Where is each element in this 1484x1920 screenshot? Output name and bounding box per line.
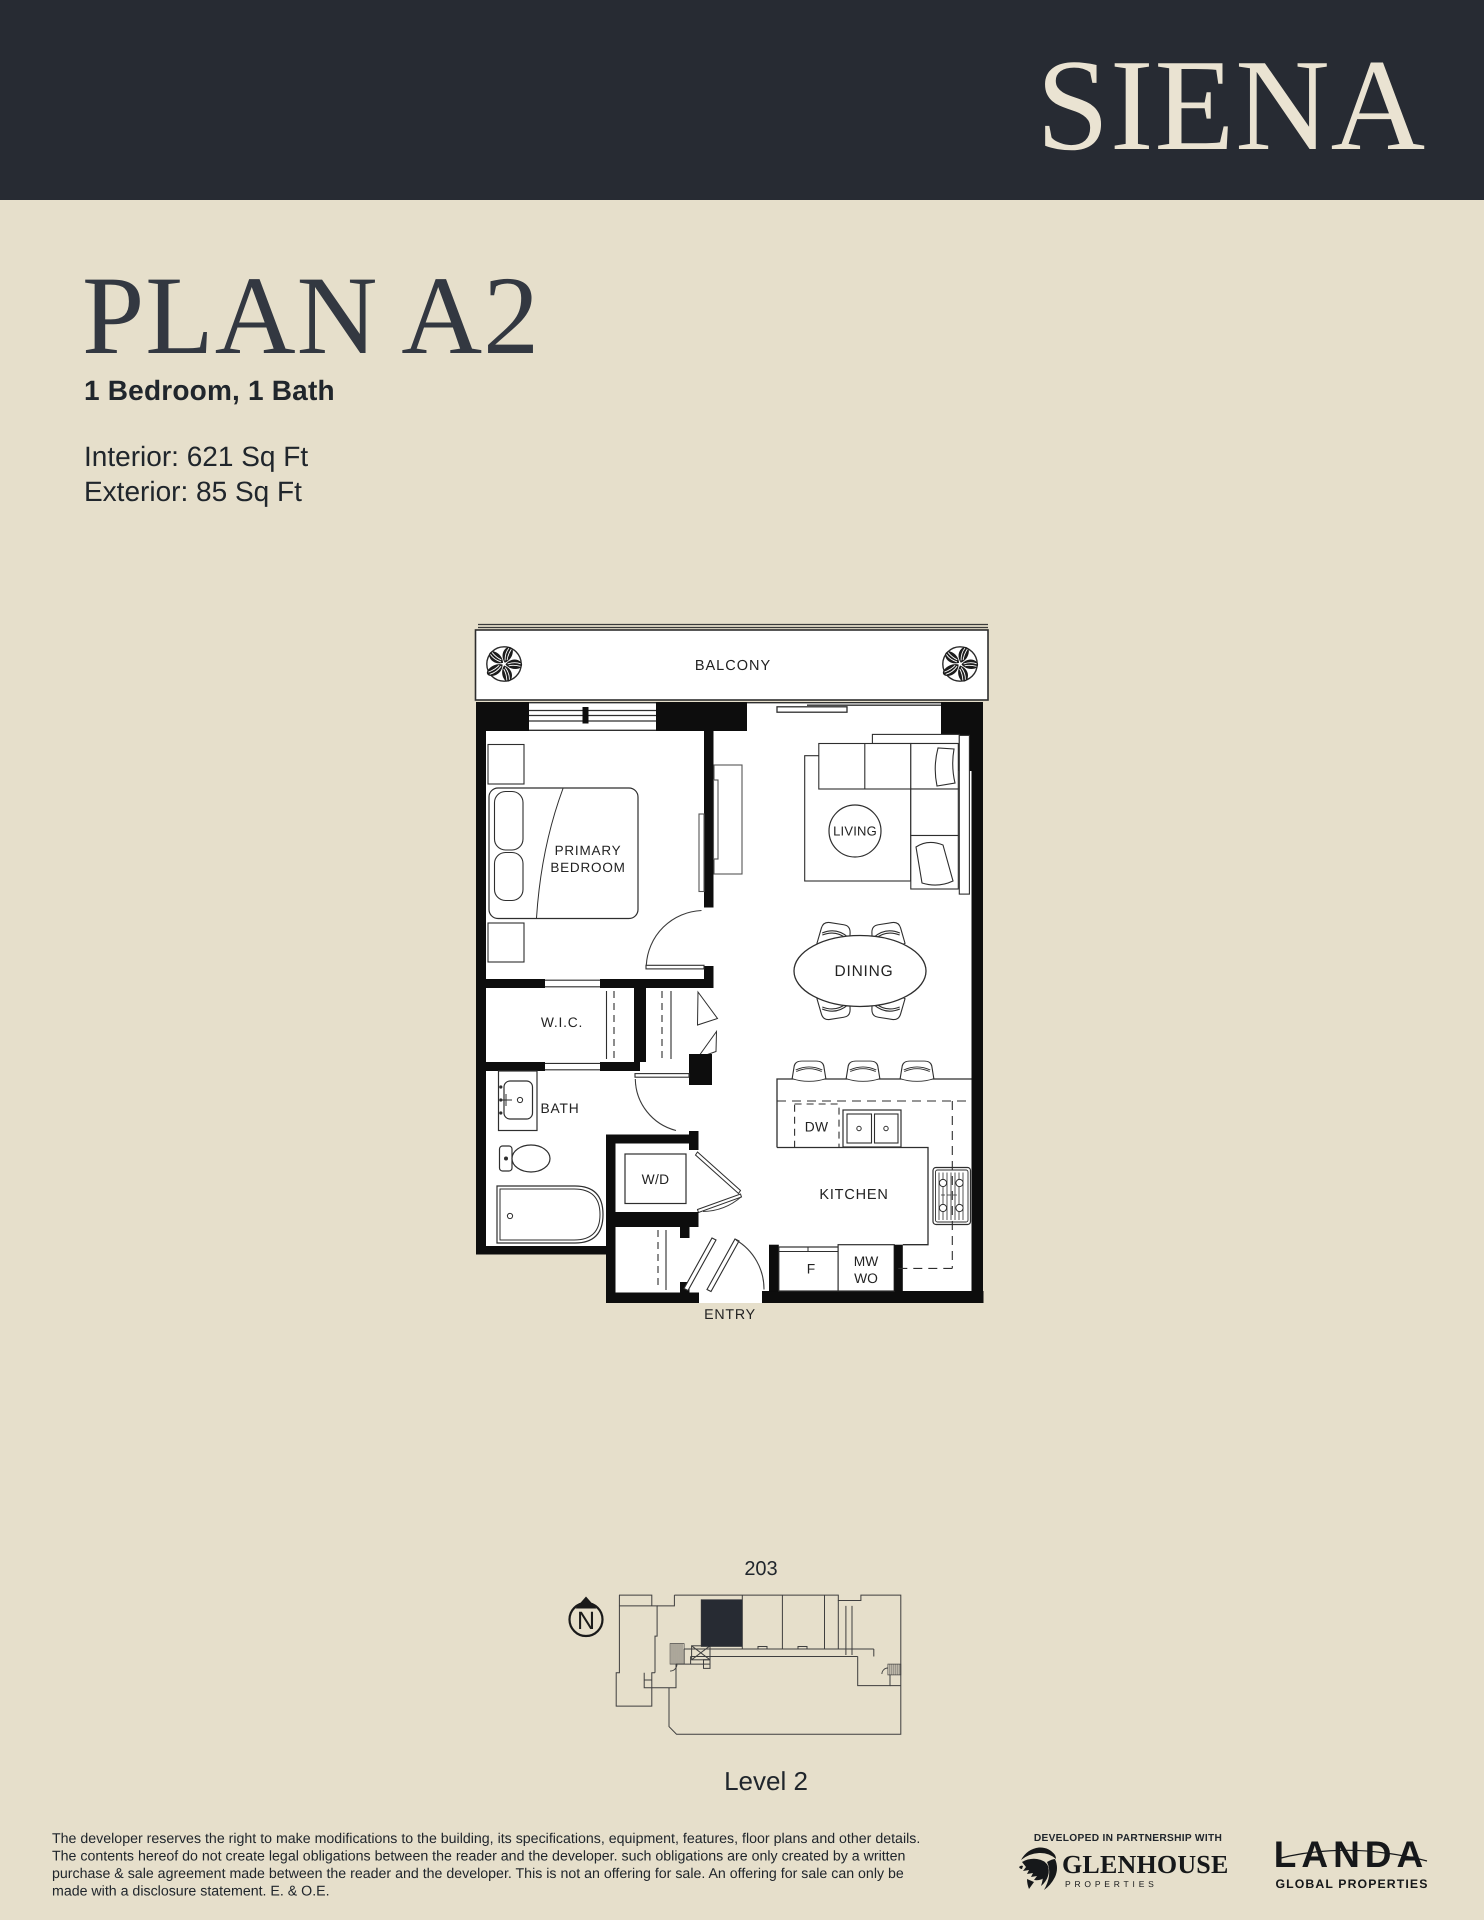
svg-text:The developer reserves the rig: The developer reserves the right to make… bbox=[52, 1831, 920, 1847]
svg-text:DINING: DINING bbox=[834, 963, 893, 980]
svg-text:DW: DW bbox=[805, 1120, 829, 1135]
svg-text:PROPERTIES: PROPERTIES bbox=[1065, 1879, 1158, 1889]
svg-text:GLENHOUSE: GLENHOUSE bbox=[1062, 1850, 1229, 1879]
svg-text:ENTRY: ENTRY bbox=[704, 1307, 756, 1323]
svg-text:DEVELOPED IN PARTNERSHIP WITH: DEVELOPED IN PARTNERSHIP WITH bbox=[1034, 1833, 1222, 1844]
svg-text:W.I.C.: W.I.C. bbox=[541, 1015, 583, 1030]
svg-text:203: 203 bbox=[744, 1558, 777, 1580]
svg-text:Exterior: 85 Sq Ft: Exterior: 85 Sq Ft bbox=[84, 476, 302, 507]
svg-text:made with a disclosure stateme: made with a disclosure statement. E. & O… bbox=[52, 1884, 330, 1900]
svg-text:BATH: BATH bbox=[541, 1101, 580, 1116]
svg-text:N: N bbox=[577, 1607, 595, 1635]
svg-text:W/D: W/D bbox=[642, 1172, 670, 1187]
svg-text:F: F bbox=[807, 1262, 815, 1277]
svg-text:purchase & sale agreement made: purchase & sale agreement made between t… bbox=[52, 1866, 904, 1882]
svg-text:Level 2: Level 2 bbox=[724, 1766, 808, 1796]
svg-text:SIENA: SIENA bbox=[1036, 33, 1426, 178]
svg-text:Interior: 621 Sq Ft: Interior: 621 Sq Ft bbox=[84, 441, 308, 472]
svg-text:GLOBAL PROPERTIES: GLOBAL PROPERTIES bbox=[1275, 1877, 1428, 1891]
svg-text:WO: WO bbox=[854, 1271, 878, 1286]
svg-text:PLAN A2: PLAN A2 bbox=[82, 254, 540, 378]
svg-text:KITCHEN: KITCHEN bbox=[819, 1187, 888, 1203]
svg-text:BEDROOM: BEDROOM bbox=[550, 860, 625, 875]
svg-text:1 Bedroom, 1 Bath: 1 Bedroom, 1 Bath bbox=[84, 375, 335, 406]
svg-text:LIVING: LIVING bbox=[833, 824, 877, 839]
svg-text:MW: MW bbox=[854, 1254, 879, 1269]
svg-text:The contents hereof do not cre: The contents hereof do not create legal … bbox=[52, 1849, 905, 1865]
svg-text:PRIMARY: PRIMARY bbox=[555, 843, 622, 858]
svg-text:BALCONY: BALCONY bbox=[695, 658, 771, 674]
